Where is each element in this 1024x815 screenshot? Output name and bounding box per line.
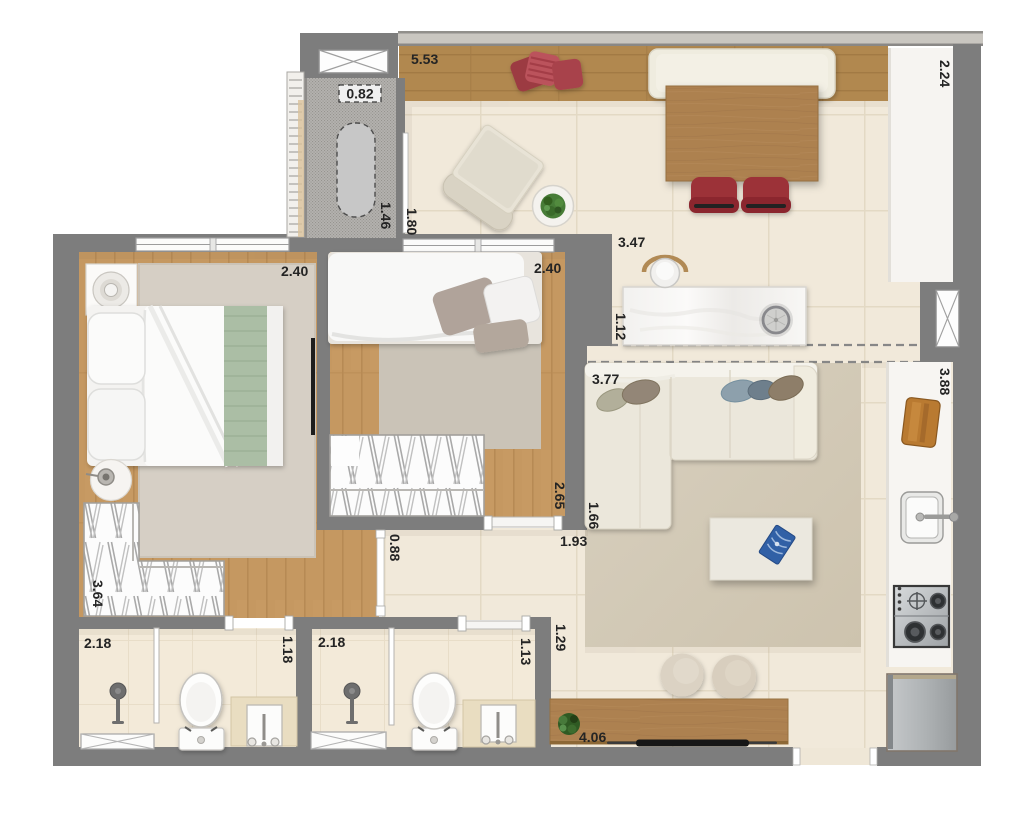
svg-text:2.40: 2.40 [281,263,308,279]
svg-text:5.53: 5.53 [411,51,438,67]
svg-text:1.80: 1.80 [404,208,420,235]
svg-text:2.18: 2.18 [318,634,345,650]
svg-text:3.64: 3.64 [90,580,106,607]
svg-text:2.65: 2.65 [552,482,568,509]
svg-text:0.82: 0.82 [346,86,373,102]
svg-text:0.88: 0.88 [387,534,403,561]
svg-text:1.93: 1.93 [560,533,587,549]
svg-text:1.13: 1.13 [518,638,534,665]
svg-text:1.66: 1.66 [586,502,602,529]
svg-text:2.18: 2.18 [84,635,111,651]
svg-text:1.46: 1.46 [378,202,394,229]
svg-text:4.06: 4.06 [579,729,606,745]
svg-text:1.12: 1.12 [613,313,629,340]
svg-text:3.47: 3.47 [618,234,645,250]
svg-text:1.18: 1.18 [280,636,296,663]
svg-text:3.88: 3.88 [937,368,953,395]
svg-text:2.24: 2.24 [937,60,953,87]
svg-text:2.40: 2.40 [534,260,561,276]
svg-text:3.77: 3.77 [592,371,619,387]
svg-text:1.29: 1.29 [553,624,569,651]
